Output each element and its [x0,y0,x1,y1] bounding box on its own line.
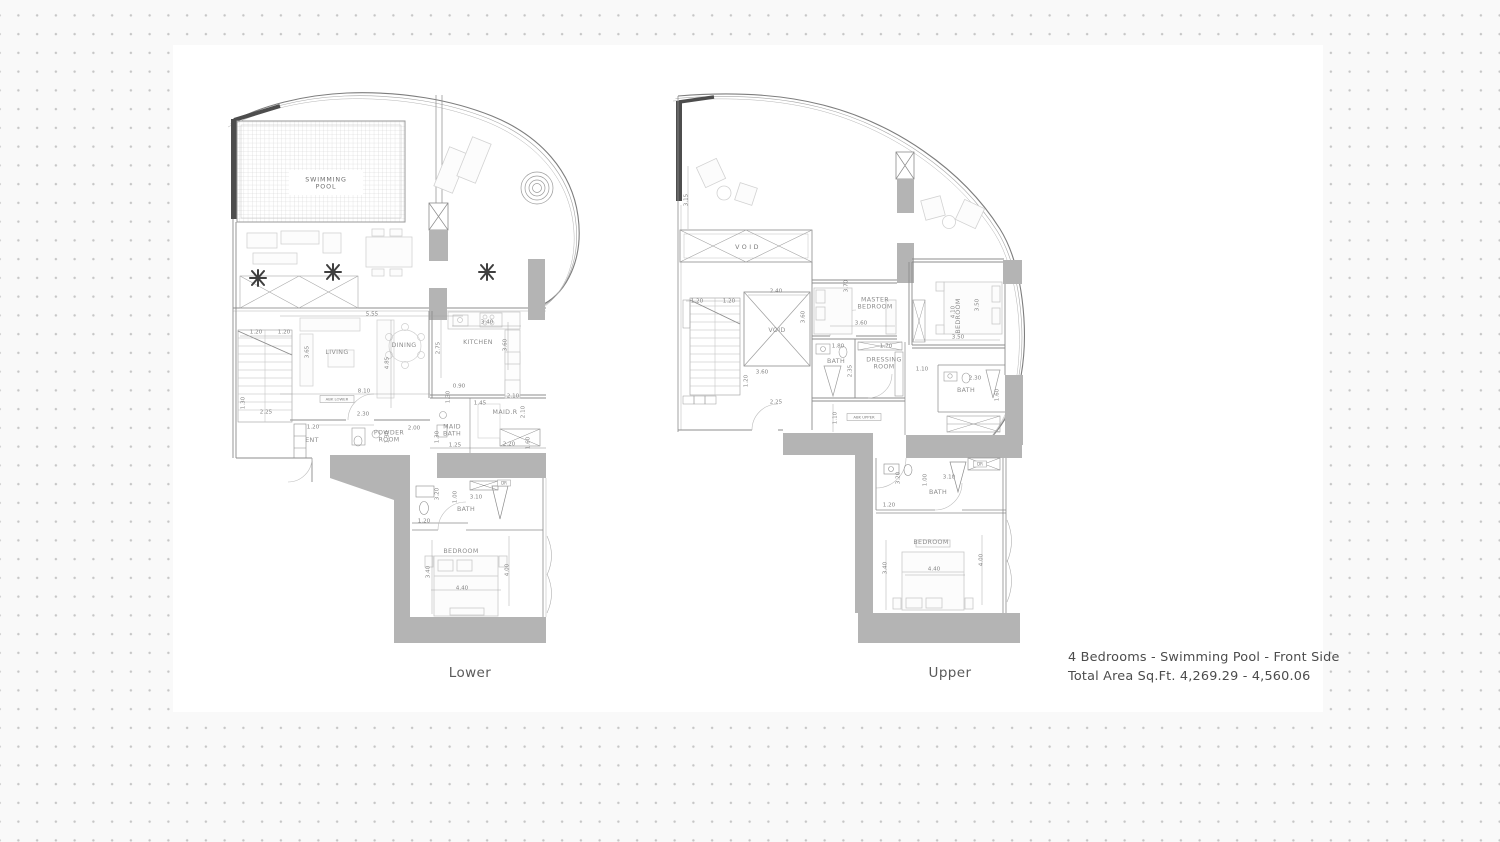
dimension-label: 2.75 [436,341,442,354]
dimension-label: 2.30 [969,376,982,382]
room-label: VOID [735,244,761,251]
dimension-label: 1.30 [446,390,452,403]
dimension-label: 1.10 [916,367,929,373]
dimension-label: 1.20 [691,299,704,305]
dimension-label: 1.60 [526,436,532,449]
room-label: BATH [457,506,475,513]
upper-stairs [683,298,740,404]
living-furniture [300,318,425,398]
dimension-label: 3.10 [943,475,956,481]
dimension-label: 3.70 [844,279,850,292]
column-markers [429,203,545,320]
dimension-label: 0.90 [453,384,466,390]
dimension-label: 2.35 [848,364,854,377]
dimension-label: 1.80 [832,344,845,350]
dimension-label: 4.00 [979,553,985,566]
dimension-label: 1.20 [883,503,896,509]
room-label: BEDROOM [913,539,948,546]
room-label: DINING [392,342,417,349]
lower-caption: Lower [410,665,530,681]
dimension-label: 4.40 [928,567,941,573]
dimension-label: 3.65 [305,345,311,358]
swimming-pool [237,121,405,222]
tag-label: ABK UPPER [853,415,875,420]
dimension-label: 1.10 [833,411,839,424]
dimension-label: 3.10 [470,495,483,501]
dimension-label: 1.70 [880,344,893,350]
upper-outer-wall [673,94,1024,450]
dimension-label: 3.15 [684,193,690,206]
dimension-label: 1.20 [744,374,750,387]
dimension-label: 1.00 [923,473,929,486]
dimension-label: 1.20 [418,519,431,525]
dimension-label: 4.40 [456,586,469,592]
tag-label: ABK LOWER [326,397,349,402]
room-label: LIVING [325,349,348,356]
room-label: DRESSINGROOM [866,356,901,370]
dimension-label: 2.20 [503,442,516,448]
tag-label: DR [501,481,507,486]
page-background: SWIMMINGPOOLLIVINGDININGKITCHENMAID.RMAI… [0,0,1500,842]
dimension-label: 8.10 [358,389,371,395]
room-label: VOID [768,327,785,334]
dimension-label: 3.50 [952,335,965,341]
master-bed [814,288,896,334]
dimension-label: 5.55 [366,312,379,318]
dimension-label: 3.40 [883,561,889,574]
dimension-label: 1.20 [723,299,736,305]
room-label: KITCHEN [463,339,493,346]
dimension-label: 1.30 [241,396,247,409]
dimension-label: 2.30 [357,412,370,418]
upper-floorplan: VOIDVOIDMASTERBEDROOMBEDROOMBATHDRESSING… [650,83,1050,663]
dimension-label: 3.60 [801,310,807,323]
dimension-label: 3.20 [435,487,441,500]
room-label: BATH [929,489,947,496]
room-label: MASTERBEDROOM [857,296,892,310]
dimension-label: 2.25 [260,410,273,416]
upper-column-markers [896,152,914,283]
dimension-label: 4.00 [505,563,511,576]
dimension-label: 1.20 [307,425,320,431]
dimension-label: 1.45 [474,401,487,407]
dimension-label: 1.20 [250,330,263,336]
dimension-label: 1.30 [385,430,391,443]
dimension-label: 1.25 [449,443,462,449]
room-label: BATH [827,358,845,365]
dimension-label: 3.60 [756,370,769,376]
room-label: MAID.R [493,409,518,416]
unit-info: 4 Bedrooms - Swimming Pool - Front Side … [1068,649,1340,686]
dimension-label: 3.40 [481,320,494,326]
room-label: MAIDBATH [443,423,461,437]
dimension-label: 1.30 [435,430,441,443]
dimension-label: 2.10 [507,394,520,400]
lower-floorplan: SWIMMINGPOOLLIVINGDININGKITCHENMAID.RMAI… [205,83,625,663]
tag-label: DR [977,462,983,467]
dimension-label: 3.60 [855,321,868,327]
dimension-label: 3.20 [896,471,902,484]
dimension-label: 2.10 [521,405,527,418]
dimension-label: 3.50 [975,298,981,311]
room-label: BATH [957,387,975,394]
dimension-label: 2.00 [408,426,421,432]
unit-info-line2: Total Area Sq.Ft. 4,269.29 - 4,560.06 [1068,668,1340,687]
upper-caption: Upper [890,665,1010,681]
dimension-label: 3.40 [426,565,432,578]
dimension-label: 2.40 [770,289,783,295]
dimension-label: 1.60 [995,388,1001,401]
dimension-label: 4.10 [951,305,957,318]
dimension-label: 2.25 [770,400,783,406]
dimension-label: 1.20 [278,330,291,336]
dimension-label: 3.60 [503,338,509,351]
unit-info-line1: 4 Bedrooms - Swimming Pool - Front Side [1068,649,1340,668]
dimension-label: 4.85 [385,356,391,369]
powder-fixtures [352,404,500,446]
room-label: ENT [305,437,319,444]
dimension-label: 1.00 [453,490,459,503]
room-label: BEDROOM [443,548,478,555]
